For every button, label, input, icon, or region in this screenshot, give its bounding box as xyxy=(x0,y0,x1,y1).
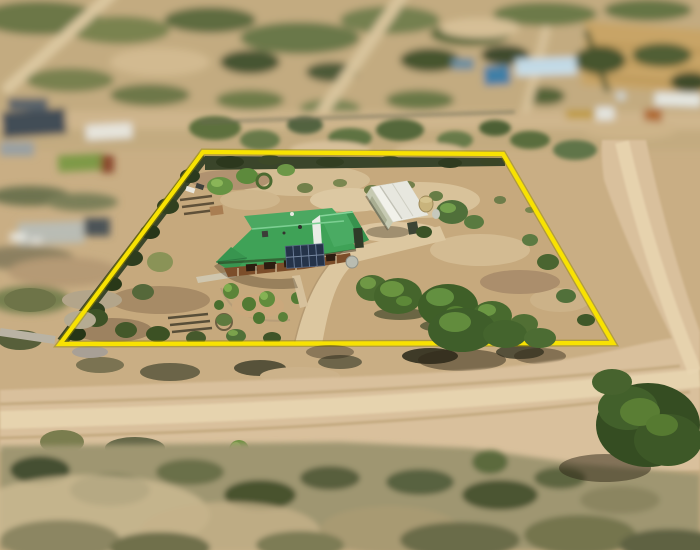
tank-top xyxy=(420,197,432,203)
aerial-photo-canvas xyxy=(0,0,700,550)
roof-vent xyxy=(298,225,302,229)
small-tank xyxy=(432,209,440,219)
garden-shed xyxy=(210,205,224,216)
solar-panels xyxy=(285,244,324,269)
aerial-photo xyxy=(0,0,700,550)
white-roof-building xyxy=(655,92,700,107)
shrub xyxy=(416,226,432,238)
blue-roof-shed xyxy=(516,57,577,76)
machinery-orange xyxy=(644,109,662,122)
chimney xyxy=(262,231,269,238)
whirlybird-vent xyxy=(290,212,294,216)
machinery-blue xyxy=(484,65,511,85)
tall-tank xyxy=(353,228,364,249)
truck xyxy=(596,107,614,120)
machinery-yellow xyxy=(566,110,594,119)
roof-vent xyxy=(283,232,286,235)
house-water-tank xyxy=(346,256,358,268)
